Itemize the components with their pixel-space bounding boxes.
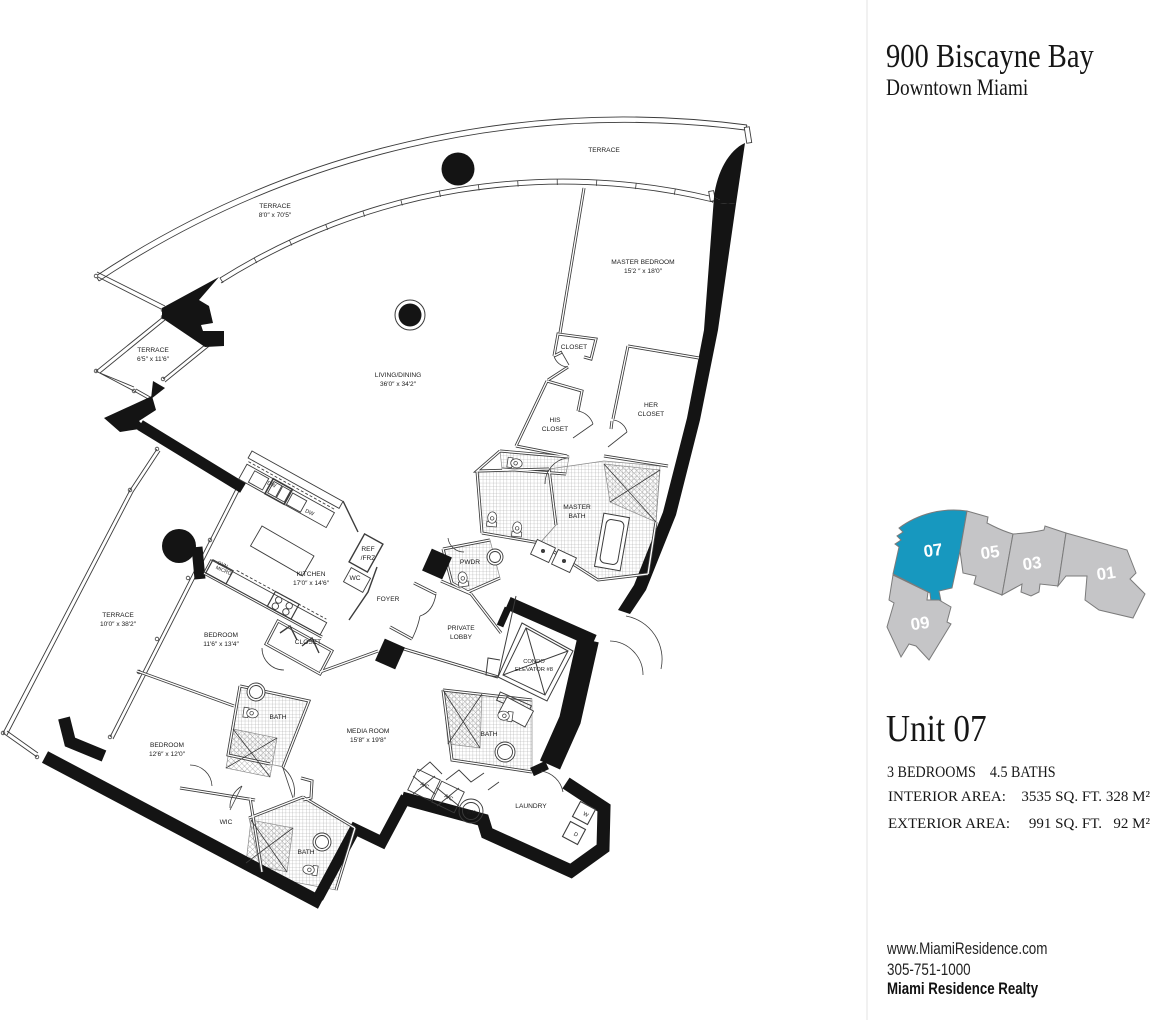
svg-text:15′8″ x 19′8″: 15′8″ x 19′8″	[350, 737, 387, 744]
svg-text:10′0″ x 38′2″: 10′0″ x 38′2″	[100, 621, 137, 628]
svg-text:WH: WH	[466, 810, 475, 816]
svg-text:15′2 ″ x 18′0″: 15′2 ″ x 18′0″	[624, 268, 663, 275]
svg-text:REF: REF	[361, 546, 374, 553]
svg-text:CLOSET: CLOSET	[638, 411, 664, 418]
svg-text:BATH: BATH	[297, 849, 314, 856]
svg-text:BATH: BATH	[269, 714, 286, 721]
svg-text:01: 01	[1095, 563, 1116, 584]
svg-text:MEDIA ROOM: MEDIA ROOM	[347, 728, 390, 735]
svg-text:FOYER: FOYER	[377, 596, 400, 603]
svg-text:CONDO: CONDO	[523, 659, 545, 665]
svg-text:07: 07	[922, 540, 943, 561]
svg-text:PWDR: PWDR	[460, 559, 480, 566]
svg-text:PRIVATE: PRIVATE	[447, 625, 475, 632]
svg-text:BATH: BATH	[480, 731, 497, 738]
svg-text:D: D	[572, 832, 578, 839]
svg-text:12′6″ x 12′0″: 12′6″ x 12′0″	[149, 751, 186, 758]
svg-text:W: W	[582, 811, 590, 819]
svg-text:05: 05	[979, 542, 1000, 563]
svg-text:MASTER BEDROOM: MASTER BEDROOM	[611, 259, 674, 266]
svg-text:LOBBY: LOBBY	[450, 634, 473, 641]
svg-text:/FRZ: /FRZ	[361, 555, 376, 562]
svg-text:8′0″ x 70′5″: 8′0″ x 70′5″	[259, 212, 292, 219]
svg-text:MICRO: MICRO	[215, 565, 233, 577]
svg-text:CLOSET: CLOSET	[542, 426, 568, 433]
svg-text:03: 03	[1021, 553, 1042, 574]
svg-text:HIS: HIS	[550, 417, 562, 424]
svg-text:TERRACE: TERRACE	[259, 203, 291, 210]
svg-text:HER: HER	[644, 402, 658, 409]
svg-text:TERRACE: TERRACE	[137, 347, 169, 354]
svg-text:17′0″ x 14′6″: 17′0″ x 14′6″	[293, 580, 330, 587]
svg-text:11′6″ x 13′4″: 11′6″ x 13′4″	[203, 641, 239, 648]
svg-text:ELEVATOR #8: ELEVATOR #8	[515, 667, 553, 673]
svg-text:A/C: A/C	[443, 793, 454, 802]
svg-text:MASTER: MASTER	[563, 504, 591, 511]
svg-text:KITCHEN: KITCHEN	[297, 571, 326, 578]
svg-text:TERRACE: TERRACE	[102, 612, 134, 619]
svg-text:LAUNDRY: LAUNDRY	[515, 803, 547, 810]
svg-text:WC: WC	[350, 575, 361, 582]
svg-text:BEDROOM: BEDROOM	[150, 742, 184, 749]
svg-text:A/C: A/C	[419, 781, 430, 790]
svg-text:BATH: BATH	[568, 513, 585, 520]
svg-text:CLOSET: CLOSET	[561, 344, 587, 351]
svg-text:LIVING/DINING: LIVING/DINING	[375, 372, 422, 379]
svg-text:CLOSET: CLOSET	[295, 639, 321, 646]
svg-text:BEDROOM: BEDROOM	[204, 632, 238, 639]
svg-text:6′5″ x 11′6″: 6′5″ x 11′6″	[137, 356, 170, 363]
svg-text:TERRACE: TERRACE	[588, 147, 620, 154]
svg-text:09: 09	[909, 613, 930, 634]
svg-text:36′0″ x 34′2″: 36′0″ x 34′2″	[380, 381, 417, 388]
svg-text:WIC: WIC	[220, 819, 233, 826]
